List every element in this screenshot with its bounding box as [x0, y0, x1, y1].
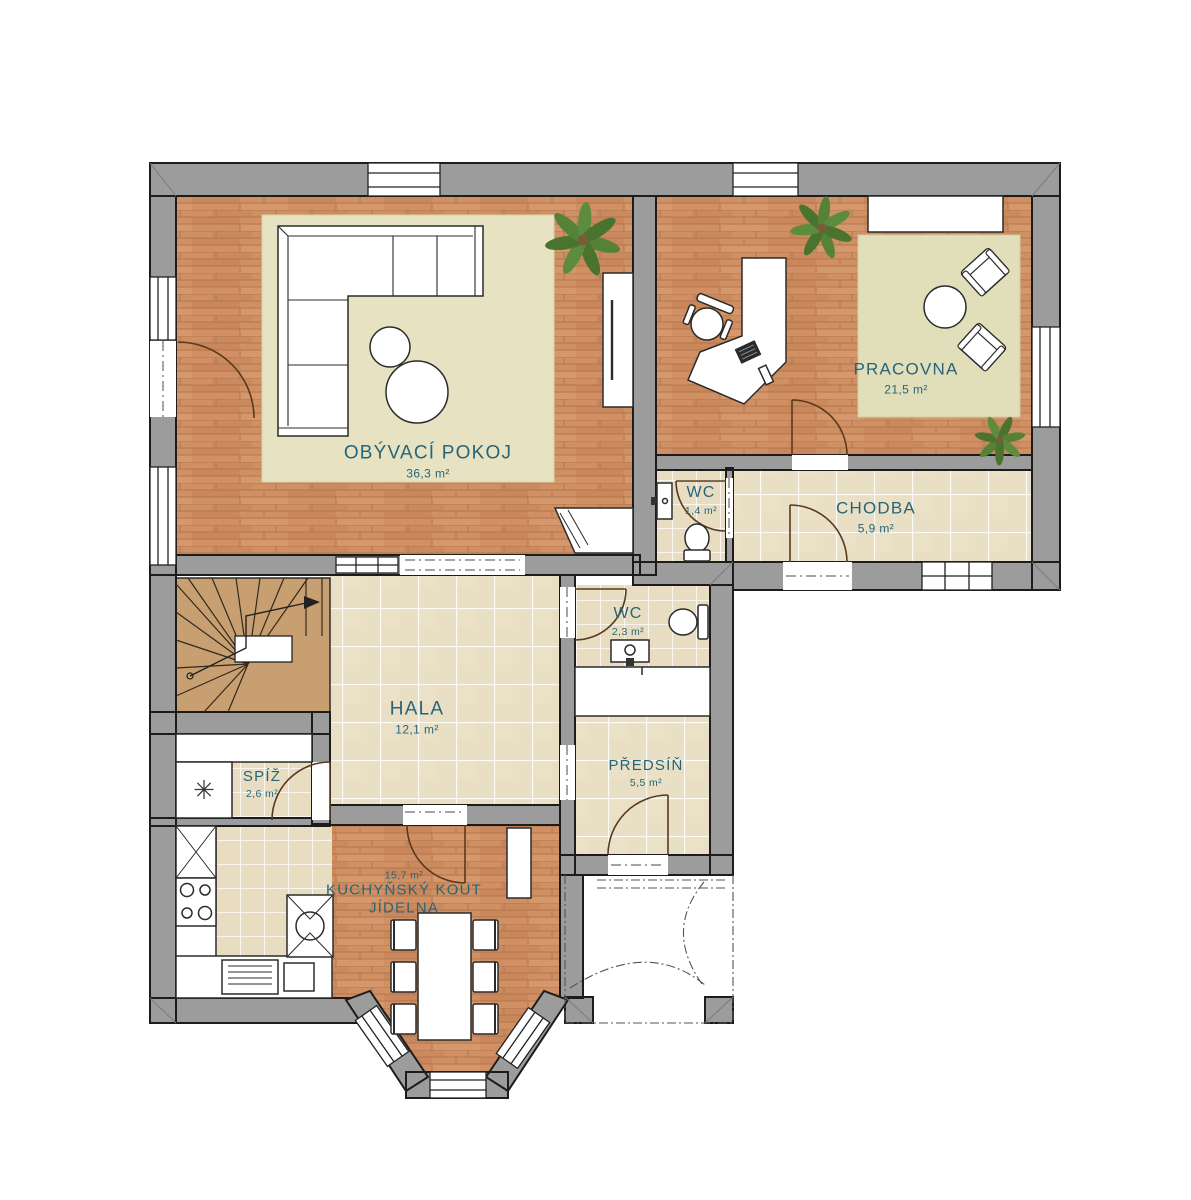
room-area: 2,3 m² [612, 626, 644, 638]
room-label-hala: HALA 12,1 m² [390, 697, 444, 736]
dining-table [418, 913, 471, 1040]
side-table [924, 286, 966, 328]
porch-arch-arc [570, 962, 705, 988]
window-pracovna-top [733, 163, 798, 196]
coffee-table-small [370, 327, 410, 367]
room-area: 15,7 m² [326, 870, 482, 882]
room-label-predsin: PŘEDSÍŇ 5,5 m² [608, 757, 683, 789]
dining-chair [391, 920, 416, 950]
room-hala-floor [330, 575, 560, 805]
floor-plan-drawing [0, 0, 1191, 1200]
room-label-spiz: SPÍŽ 2,6 m² [243, 768, 281, 800]
window-living-low [336, 557, 398, 573]
spiz-shelf [176, 734, 312, 762]
room-name: SPÍŽ [243, 768, 281, 786]
room-area: 5,5 m² [608, 777, 683, 789]
room-area: 5,9 m² [836, 521, 916, 535]
room-name-line2: JÍDELNA [326, 900, 482, 918]
room-name: WC [612, 604, 644, 624]
room-label-wc-prizemi: WC 2,3 m² [612, 604, 644, 638]
freezer-snowflake-icon: ✳ [193, 777, 215, 803]
fridge [176, 826, 216, 878]
coffee-table-large [386, 361, 448, 423]
dining-cabinet [507, 828, 531, 898]
dining-chair [473, 920, 498, 950]
floor-plan: OBÝVACÍ POKOJ 36,3 m² PRACOVNA 21,5 m² W… [0, 0, 1191, 1200]
dining-chair [391, 1004, 416, 1034]
stove-cooktop [176, 878, 216, 926]
window-living-top [368, 163, 440, 196]
built-in-wardrobe [575, 667, 710, 716]
room-area: 2,6 m² [243, 788, 281, 800]
dishwasher [176, 956, 332, 998]
window-chodba-bottom [922, 562, 992, 590]
room-name: OBÝVACÍ POKOJ [344, 441, 512, 464]
window-living-left-2 [150, 467, 176, 565]
room-label-pracovna: PRACOVNA 21,5 m² [853, 360, 958, 397]
room-area: 12,1 m² [390, 723, 444, 737]
porch-arch-arc [683, 882, 704, 984]
room-name: CHODBA [836, 499, 916, 520]
window-living-left-1 [150, 277, 176, 340]
window-bay-bottom [430, 1072, 486, 1098]
room-label-obyvaci-pokoj: OBÝVACÍ POKOJ 36,3 m² [344, 441, 512, 480]
bookshelf [868, 196, 1003, 232]
room-area: 1,4 m² [685, 505, 717, 517]
wc-horni-toilet [684, 524, 710, 561]
room-name: KUCHYŇSKÝ KOUT [326, 882, 482, 900]
room-area: 21,5 m² [853, 382, 958, 396]
room-area: 36,3 m² [344, 467, 512, 481]
room-name: HALA [390, 697, 444, 720]
room-label-kuchynsky-kout: 15,7 m² KUCHYŇSKÝ KOUT JÍDELNA [326, 868, 482, 919]
room-name: WC [685, 483, 717, 503]
room-label-chodba: CHODBA 5,9 m² [836, 499, 916, 536]
room-label-wc-horni: WC 1,4 m² [685, 483, 717, 517]
room-name: PŘEDSÍŇ [608, 757, 683, 775]
room-name: PRACOVNA [853, 360, 958, 381]
wc-prizemi-sink [611, 640, 649, 666]
window-pracovna-right [1032, 327, 1060, 427]
tv-unit [603, 273, 633, 407]
dining-chair [473, 1004, 498, 1034]
dining-chair [391, 962, 416, 992]
dining-chair [473, 962, 498, 992]
